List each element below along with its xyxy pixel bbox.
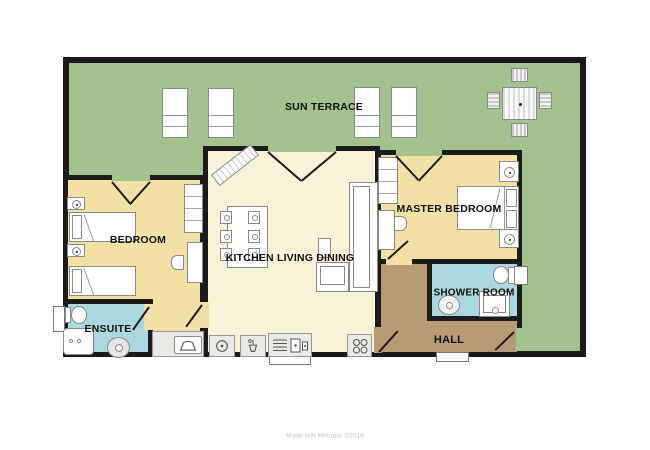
single-bed-icon: [69, 266, 136, 296]
dining-chair-icon: [248, 230, 260, 243]
nightstand-lamp-icon: [67, 197, 85, 210]
doorway-terrace-bedroom: [112, 174, 150, 181]
window-shower-room: [514, 266, 528, 285]
nightstand-lamp-icon: [499, 161, 519, 182]
label-shower-room: SHOWER ROOM: [433, 288, 514, 299]
patio-chair-icon: [511, 68, 528, 82]
desk-icon: [378, 210, 395, 250]
doorway-hall-terrace: [516, 328, 523, 351]
label-kitchen-living-dining: KITCHEN LIVING DINING: [226, 252, 354, 264]
patio-chair-icon: [511, 123, 528, 137]
credit-text: Made with Metropix ©2016: [286, 433, 363, 440]
desk-chair-icon: [394, 216, 407, 231]
label-ensuite: ENSUITE: [85, 323, 132, 335]
label-sun-terrace: SUN TERRACE: [285, 101, 363, 113]
floor-plan: SUN TERRACE BEDROOM KITCHEN LIVING DININ…: [0, 0, 650, 450]
nightstand-lamp-icon: [499, 229, 519, 248]
corner-sofa-icon: [316, 262, 349, 292]
patio-chair-icon: [539, 92, 552, 109]
toilet-icon: [493, 266, 509, 284]
window-hall: [436, 352, 469, 362]
patio-table-icon: [502, 87, 537, 120]
hob-icon: [347, 334, 372, 357]
label-bedroom: BEDROOM: [110, 234, 166, 246]
window-ensuite: [53, 306, 65, 332]
kitchen-sink-icon: [240, 335, 266, 357]
sun-lounger-icon: [162, 88, 188, 138]
label-hall: HALL: [434, 334, 464, 346]
dining-chair-icon: [220, 211, 232, 224]
desk-chair-icon: [171, 255, 184, 270]
label-master-bedroom: MASTER BEDROOM: [397, 203, 502, 215]
toilet-icon: [71, 306, 87, 324]
washing-machine-icon: [209, 335, 235, 357]
drainer-unit-icon: [268, 333, 312, 357]
dining-chair-icon: [220, 230, 232, 243]
shower-drain-icon: [107, 337, 130, 358]
doorway-terrace-kitchen: [268, 145, 336, 152]
dresser-icon: [184, 184, 203, 233]
desk-icon: [187, 242, 203, 283]
nightstand-lamp-icon: [67, 244, 85, 257]
sun-lounger-icon: [391, 87, 417, 138]
doorway-terrace-master: [396, 149, 442, 156]
dresser-icon: [378, 157, 398, 204]
corner-sofa-icon: [349, 182, 378, 292]
patio-chair-icon: [487, 92, 500, 109]
dining-chair-icon: [248, 211, 260, 224]
sun-lounger-icon: [208, 88, 234, 138]
toilet-icon: [508, 267, 515, 284]
storage-bench-icon: [152, 331, 204, 357]
